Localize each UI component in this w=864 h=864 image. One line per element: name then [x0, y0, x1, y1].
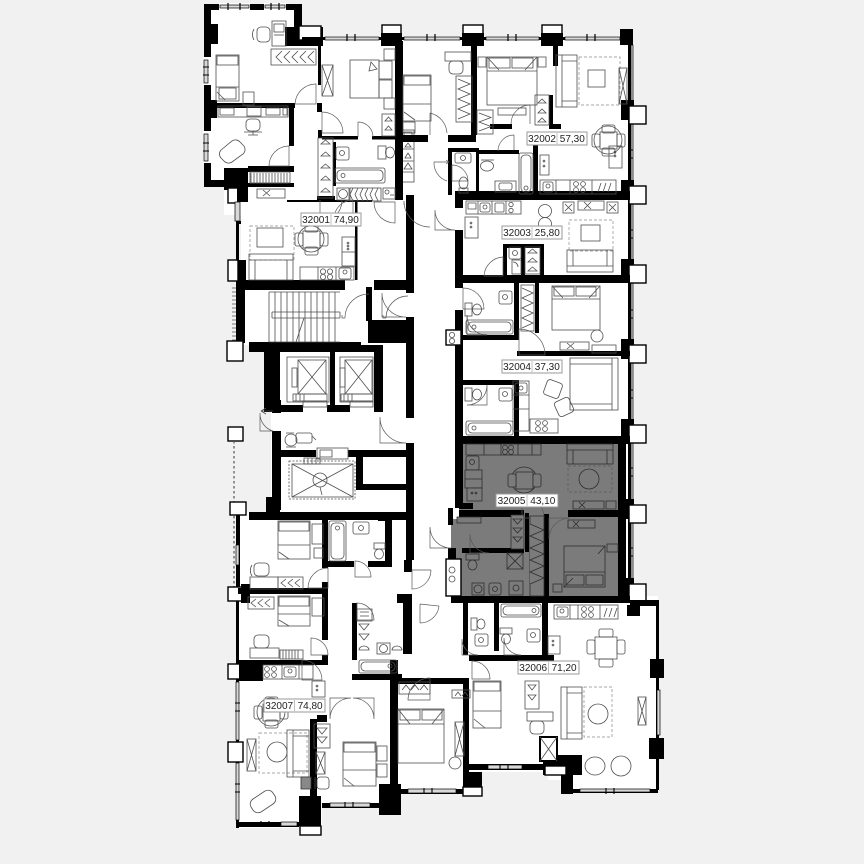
svg-text:32006: 32006: [519, 663, 547, 674]
svg-text:74,90: 74,90: [334, 215, 359, 226]
svg-text:74,80: 74,80: [298, 701, 323, 712]
svg-text:32002: 32002: [528, 134, 556, 145]
svg-text:57,30: 57,30: [560, 134, 585, 145]
svg-text:43,10: 43,10: [530, 496, 555, 507]
svg-text:32007: 32007: [265, 701, 293, 712]
svg-text:32004: 32004: [503, 362, 531, 373]
svg-text:25,80: 25,80: [535, 228, 560, 239]
svg-text:32001: 32001: [302, 215, 330, 226]
svg-text:71,20: 71,20: [552, 663, 577, 674]
svg-text:32003: 32003: [503, 228, 531, 239]
svg-text:37,30: 37,30: [535, 362, 560, 373]
svg-text:32005: 32005: [498, 496, 526, 507]
